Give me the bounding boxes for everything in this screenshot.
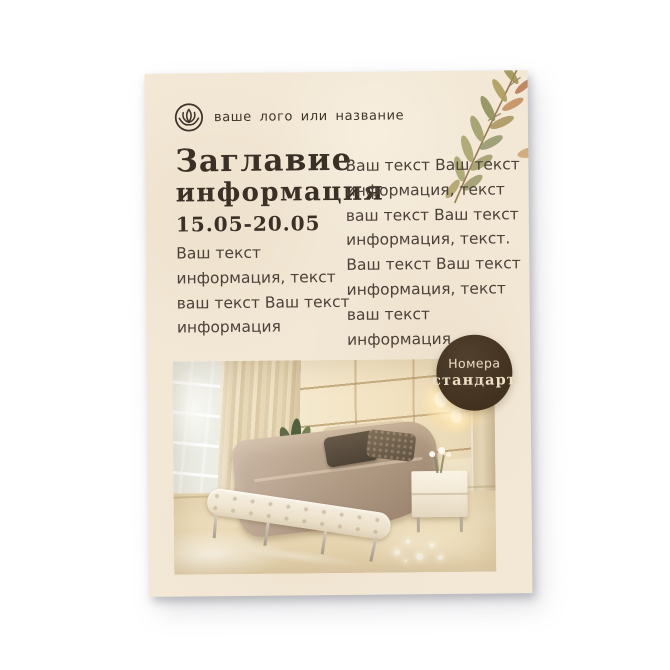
body-line: информация, текст: [346, 276, 521, 302]
logo-text: ваше лого или название: [214, 108, 404, 125]
pendant-bulb: [451, 409, 462, 423]
body-line: информация, текст: [346, 177, 521, 203]
bench-leg: [263, 523, 269, 546]
date-range: 15.05-20.05: [176, 211, 321, 236]
badge-line2: стандарт: [432, 371, 517, 390]
body-line: информация, текст: [176, 265, 349, 291]
mockup-canvas: ваше лого или название Заглавие информац…: [0, 0, 670, 670]
body-line: ваш текст Ваш текст: [177, 289, 350, 315]
nightstand-leg: [460, 517, 463, 532]
bench-leg: [369, 537, 377, 562]
lotus-logo-icon: [173, 101, 205, 133]
body-text-left-column: Ваш текст информация, текст ваш текст Ва…: [176, 240, 350, 341]
bench-leg: [213, 514, 218, 538]
body-line: Ваш текст: [176, 240, 349, 266]
flyer-title-line1: Заглавие: [175, 144, 353, 178]
body-line: ваш текст Ваш текст: [346, 202, 521, 228]
hotel-flyer: ваше лого или название Заглавие информац…: [144, 70, 532, 597]
body-text-right-column: Ваш текст Ваш текст информация, текст ва…: [345, 152, 521, 352]
floor-sparkles: [386, 529, 456, 570]
body-line: информация: [177, 314, 350, 340]
room-category-badge: Номера стандарт: [436, 334, 513, 411]
body-line: Ваш текст Ваш текст: [346, 251, 521, 277]
badge-line1: Номера: [448, 355, 500, 372]
body-line: ваш текст: [347, 301, 522, 327]
body-line: Ваш текст Ваш текст: [345, 152, 520, 178]
logo: ваше лого или название: [173, 99, 405, 133]
body-line: информация, текст.: [346, 227, 521, 253]
